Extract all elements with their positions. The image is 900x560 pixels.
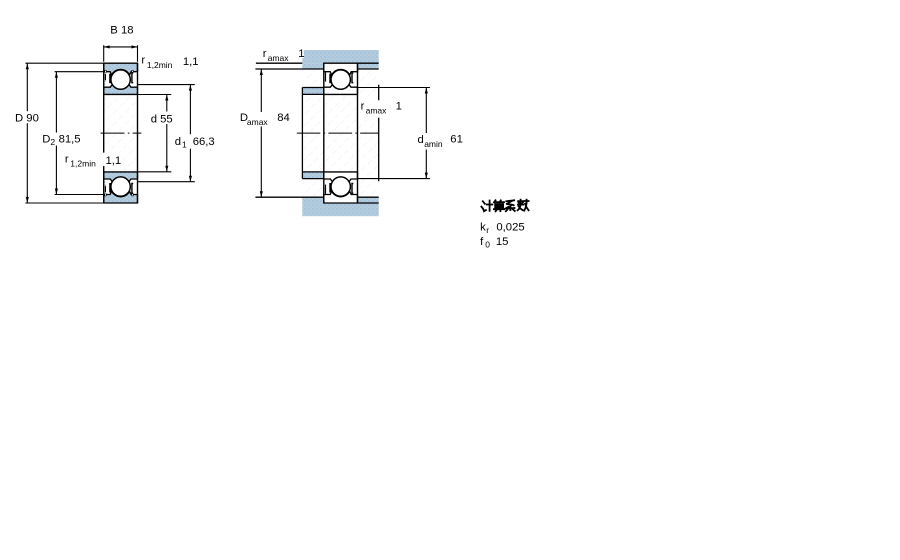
svg-text:15: 15 — [496, 236, 509, 248]
svg-text:81,5: 81,5 — [59, 133, 81, 145]
svg-text:1,1: 1,1 — [183, 56, 199, 68]
svg-text:f: f — [480, 236, 484, 248]
svg-text:2: 2 — [50, 137, 55, 147]
svg-text:84: 84 — [277, 112, 290, 124]
svg-text:1,2min: 1,2min — [147, 60, 173, 70]
svg-text:0,025: 0,025 — [496, 221, 524, 233]
svg-text:d: d — [418, 134, 424, 146]
svg-text:r: r — [141, 54, 145, 66]
svg-text:d: d — [175, 136, 181, 148]
svg-text:61: 61 — [450, 134, 463, 146]
svg-text:amax: amax — [366, 106, 388, 116]
svg-text:r: r — [486, 225, 489, 235]
svg-text:1: 1 — [182, 140, 187, 150]
svg-text:D: D — [42, 133, 50, 145]
svg-text:amin: amin — [424, 139, 443, 149]
svg-text:amax: amax — [247, 117, 269, 127]
svg-text:r: r — [263, 48, 267, 60]
svg-text:k: k — [480, 221, 486, 233]
svg-text:amax: amax — [268, 53, 290, 63]
svg-text:1,2min: 1,2min — [70, 159, 96, 169]
svg-text:1: 1 — [298, 48, 304, 60]
svg-text:r: r — [65, 154, 69, 166]
svg-text:66,3: 66,3 — [193, 136, 215, 148]
svg-text:1: 1 — [396, 100, 402, 112]
svg-text:d 55: d 55 — [151, 113, 173, 125]
svg-text:B 18: B 18 — [110, 25, 133, 37]
svg-text:0: 0 — [485, 240, 490, 250]
svg-text:D 90: D 90 — [15, 112, 39, 124]
svg-text:r: r — [361, 101, 365, 113]
svg-text:1,1: 1,1 — [106, 155, 122, 167]
